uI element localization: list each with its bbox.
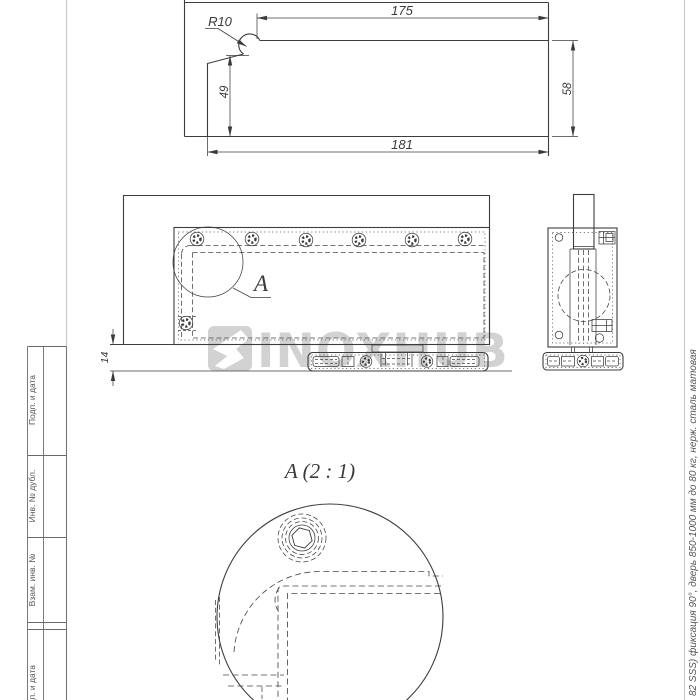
title-block: Подп. и дата Инв. № дубл. Взам. инв. № П… xyxy=(27,347,67,700)
detail-boundary-circle xyxy=(217,504,443,700)
floor-base-strip-side xyxy=(543,353,623,371)
plate-screw xyxy=(299,233,313,247)
glass-edge xyxy=(574,195,595,250)
side-note: 82 SSS) фиксация 90°, дверь 850-1000 мм … xyxy=(687,349,699,696)
titleblock-cell-vzam-inv: Взам. инв. № xyxy=(27,554,37,607)
base-screw xyxy=(577,355,589,367)
dim-text-58: 58 xyxy=(562,82,574,95)
dim-text-181: 181 xyxy=(391,137,413,152)
detail-callout-circle xyxy=(173,227,243,297)
plate-screw xyxy=(245,232,259,246)
glass-outline xyxy=(124,196,490,345)
plate-screw-lower xyxy=(179,316,193,330)
dim-text-49: 49 xyxy=(219,85,231,98)
dim-floor-gap: 14 xyxy=(99,329,115,386)
engineering-drawing-sheet: INOXHUB Подп. и дата Инв. № дубл. Взам. … xyxy=(0,0,700,700)
plate-screw xyxy=(352,233,366,247)
detail-view-a: A (2 : 1) xyxy=(216,459,444,700)
titleblock-cell-podp-i-data-1: Подп. и дата xyxy=(27,375,37,425)
side-view-hinge xyxy=(543,195,623,371)
detail-view-title: A (2 : 1) xyxy=(283,459,355,483)
plate-screw xyxy=(190,232,204,246)
top-view-glass-cutout: 175 181 58 49 R10 xyxy=(185,0,579,156)
dim-text-175: 175 xyxy=(391,3,413,18)
product-description-text: 82 SSS) фиксация 90°, дверь 850-1000 мм … xyxy=(687,349,699,696)
hex-socket-screw xyxy=(278,514,326,562)
radius-label-r10: R10 xyxy=(208,14,233,29)
cutout-corner-contour xyxy=(234,571,443,652)
titleblock-cell-podp-i-data-2: Подп. и дата xyxy=(27,665,37,700)
plate-screw xyxy=(458,232,472,246)
detail-callout-letter: A xyxy=(252,271,269,296)
dim-text-14: 14 xyxy=(99,352,111,364)
plate-screw xyxy=(405,233,419,247)
titleblock-cell-inv-dubl: Инв. № дубл. xyxy=(27,470,37,523)
hidden-pivot-circle xyxy=(558,270,610,322)
